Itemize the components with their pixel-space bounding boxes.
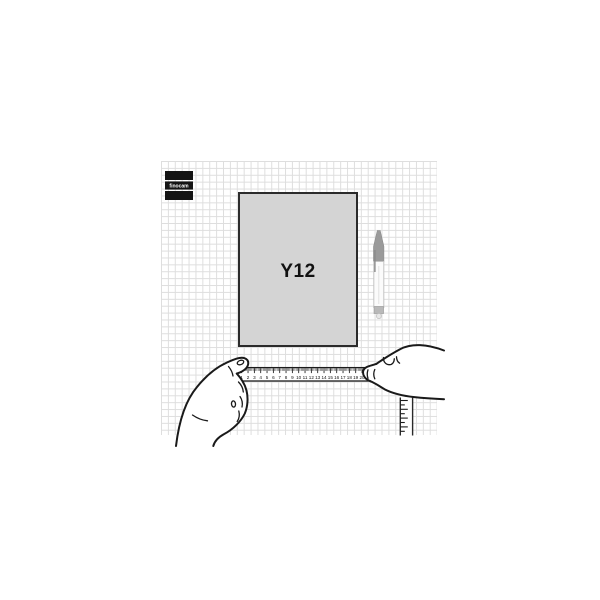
logo-band-top — [165, 171, 193, 180]
brand-logo: finocam — [165, 171, 193, 200]
product-rectangle: Y12 — [238, 192, 358, 347]
illustration-canvas: finocam Y12 1234567891011121314151617181… — [0, 0, 600, 600]
product-label: Y12 — [280, 261, 315, 283]
logo-band-bottom — [165, 191, 193, 200]
logo-text: finocam — [169, 184, 189, 190]
